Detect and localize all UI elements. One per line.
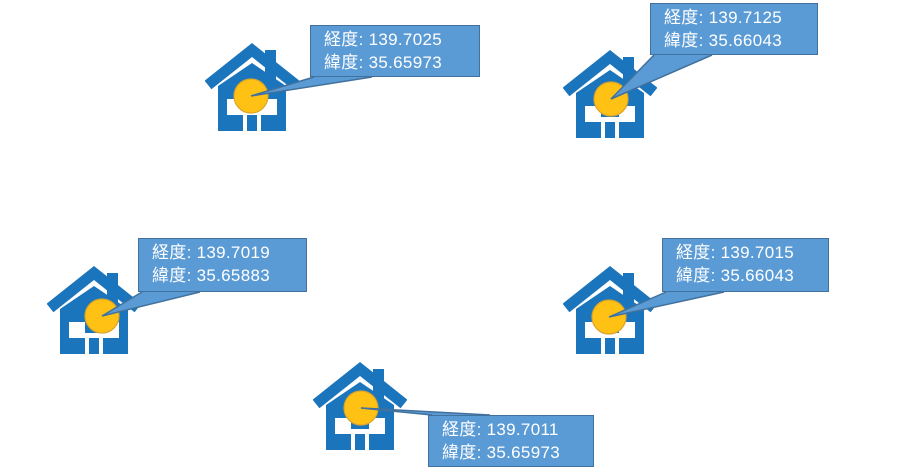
coordinate-callout: 経度: 139.7015緯度: 35.66043 — [662, 238, 829, 292]
coordinate-callout: 経度: 139.7019緯度: 35.65883 — [138, 238, 307, 292]
callout-tail — [251, 77, 372, 96]
latitude-text: 緯度: 35.65973 — [324, 51, 473, 74]
latitude-text: 緯度: 35.66043 — [676, 264, 822, 287]
callout-tail — [361, 408, 490, 415]
longitude-text: 経度: 139.7019 — [152, 241, 300, 264]
coordinate-callout: 経度: 139.7025緯度: 35.65973 — [310, 25, 480, 77]
coordinate-callout: 経度: 139.7125緯度: 35.66043 — [650, 3, 818, 55]
coordinate-callout: 経度: 139.7011緯度: 35.65973 — [428, 415, 594, 467]
latitude-text: 緯度: 35.66043 — [664, 29, 811, 52]
longitude-text: 経度: 139.7025 — [324, 28, 473, 51]
latitude-text: 緯度: 35.65883 — [152, 264, 300, 287]
longitude-text: 経度: 139.7125 — [664, 6, 811, 29]
callout-tail — [102, 292, 200, 316]
longitude-text: 経度: 139.7011 — [442, 418, 587, 441]
latitude-text: 緯度: 35.65973 — [442, 441, 587, 464]
longitude-text: 経度: 139.7015 — [676, 241, 822, 264]
callout-tail — [611, 55, 712, 99]
callout-tail — [609, 292, 724, 317]
slide-canvas: 経度: 139.7025緯度: 35.65973経度: 139.7125緯度: … — [0, 0, 904, 471]
